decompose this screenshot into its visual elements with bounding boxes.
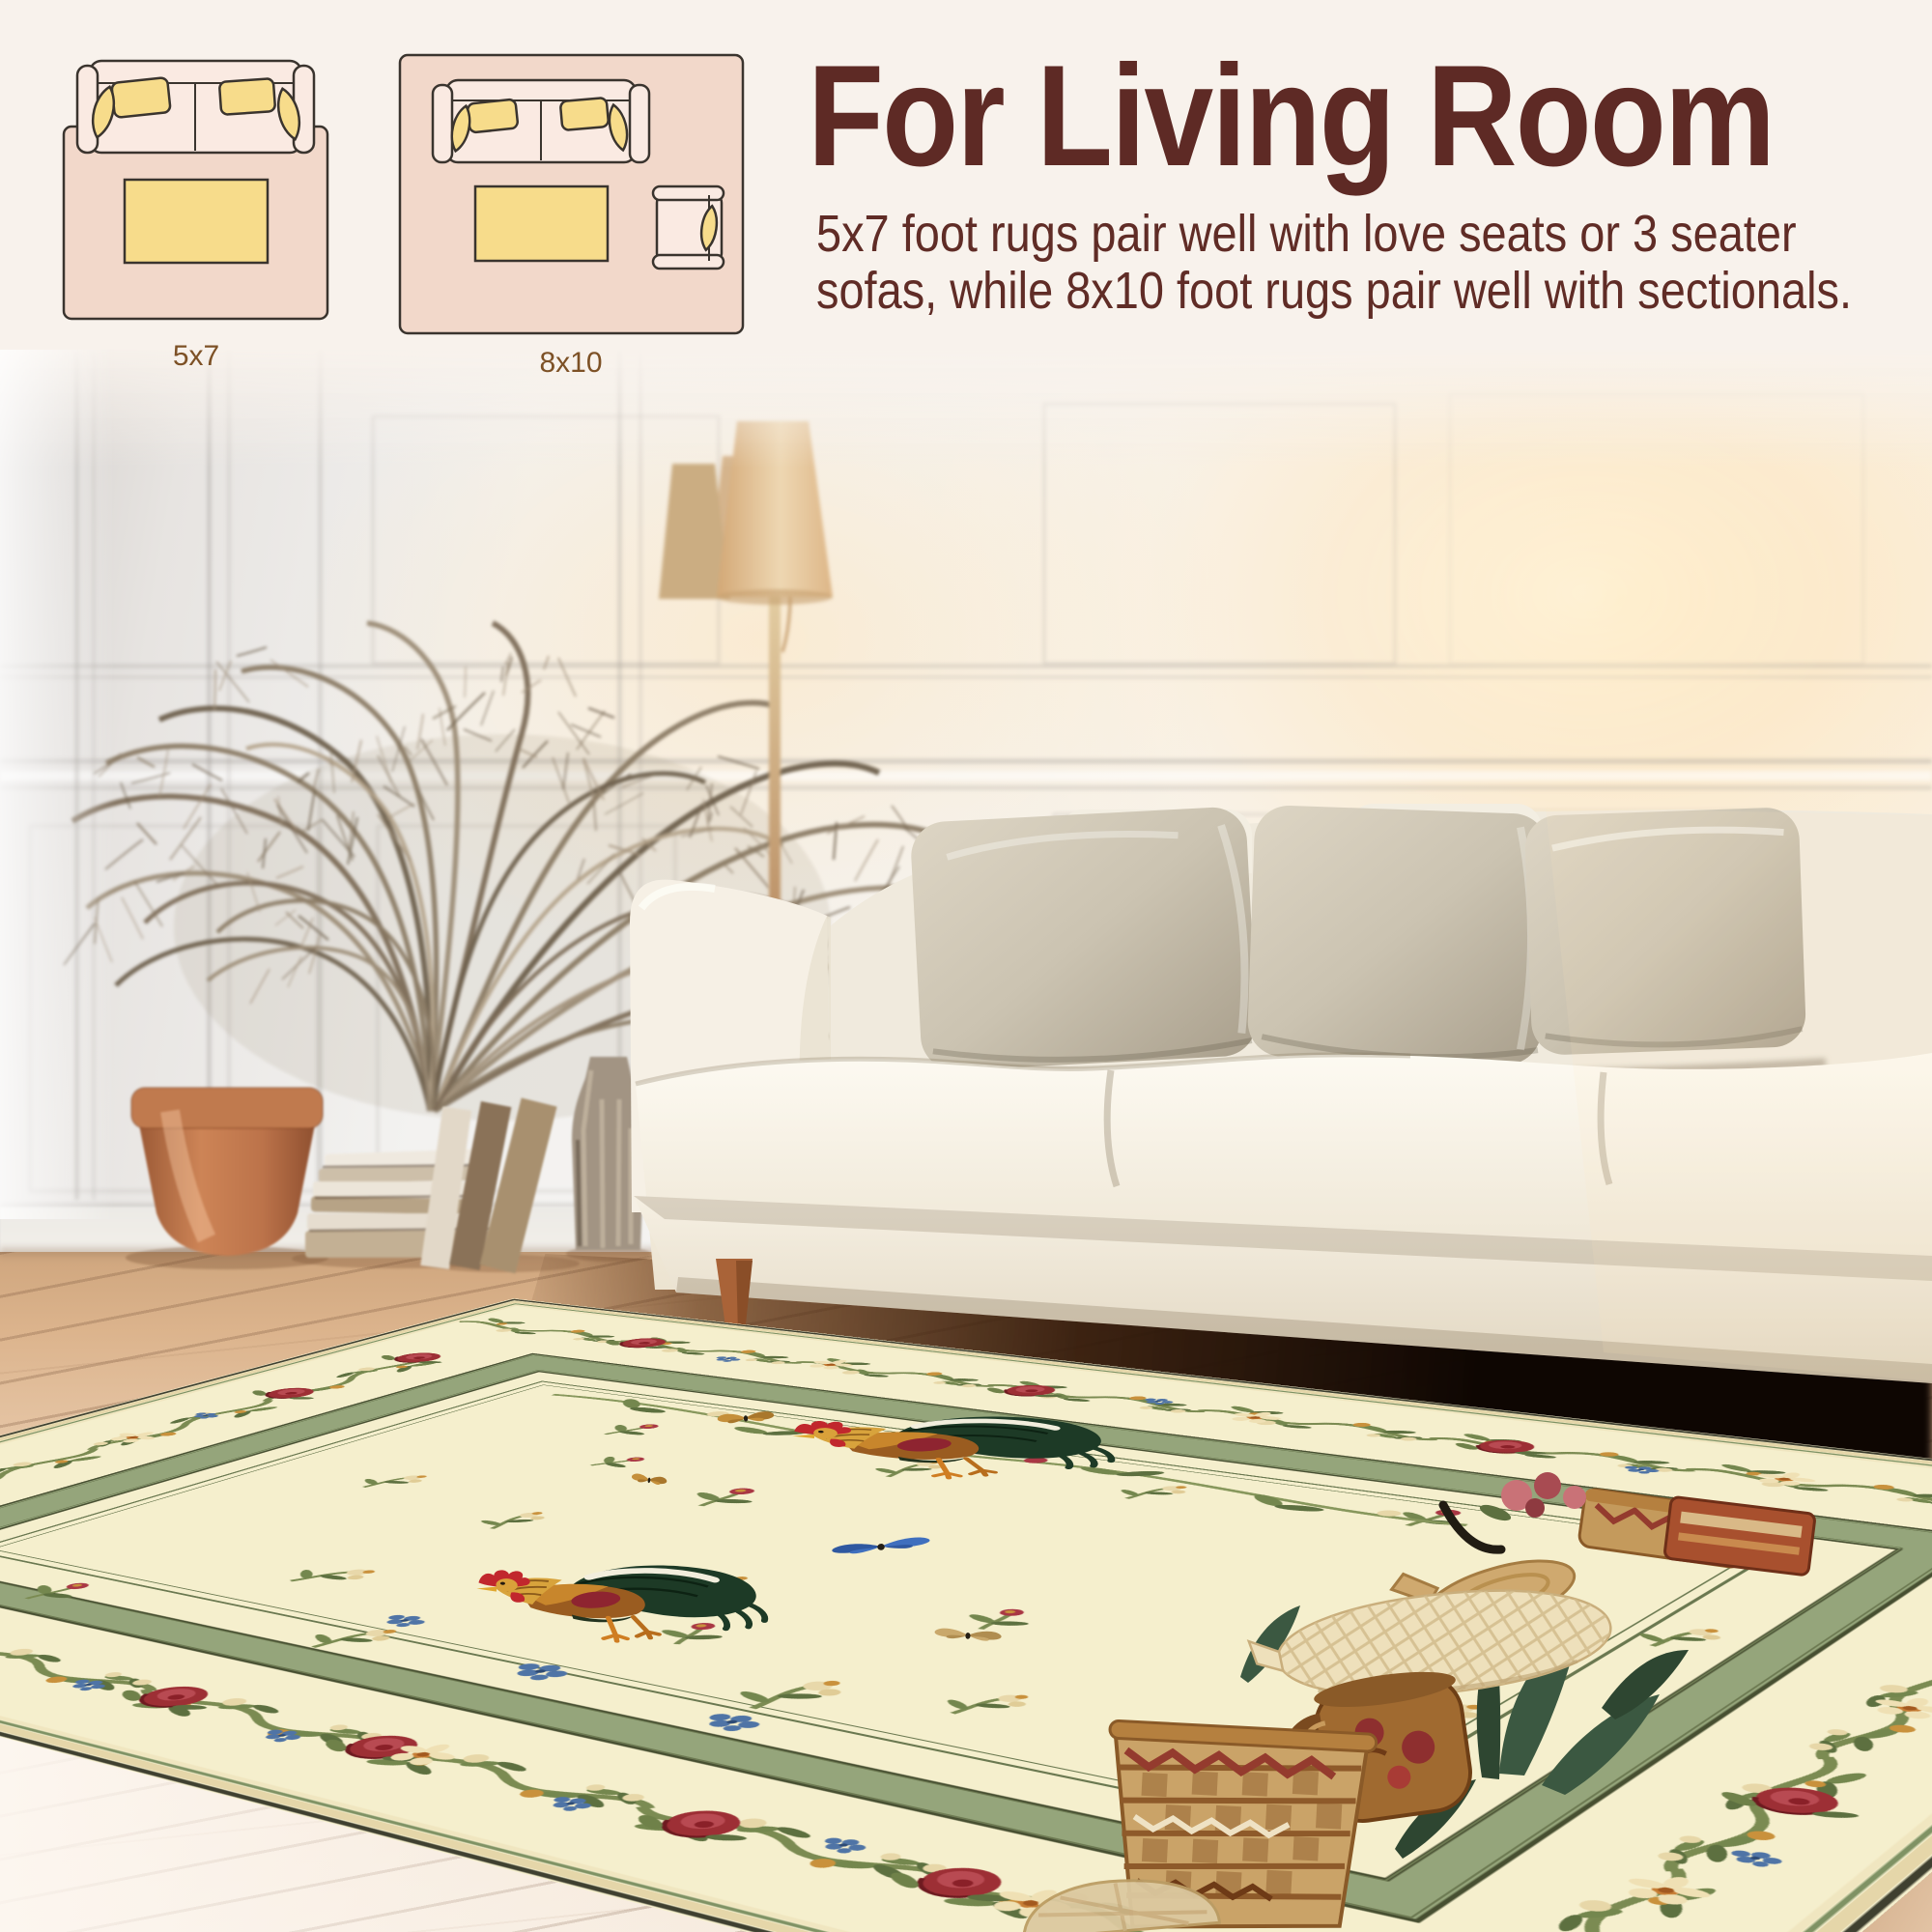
svg-text:8x10: 8x10 <box>539 347 602 379</box>
svg-text:5x7: 5x7 <box>173 340 219 372</box>
